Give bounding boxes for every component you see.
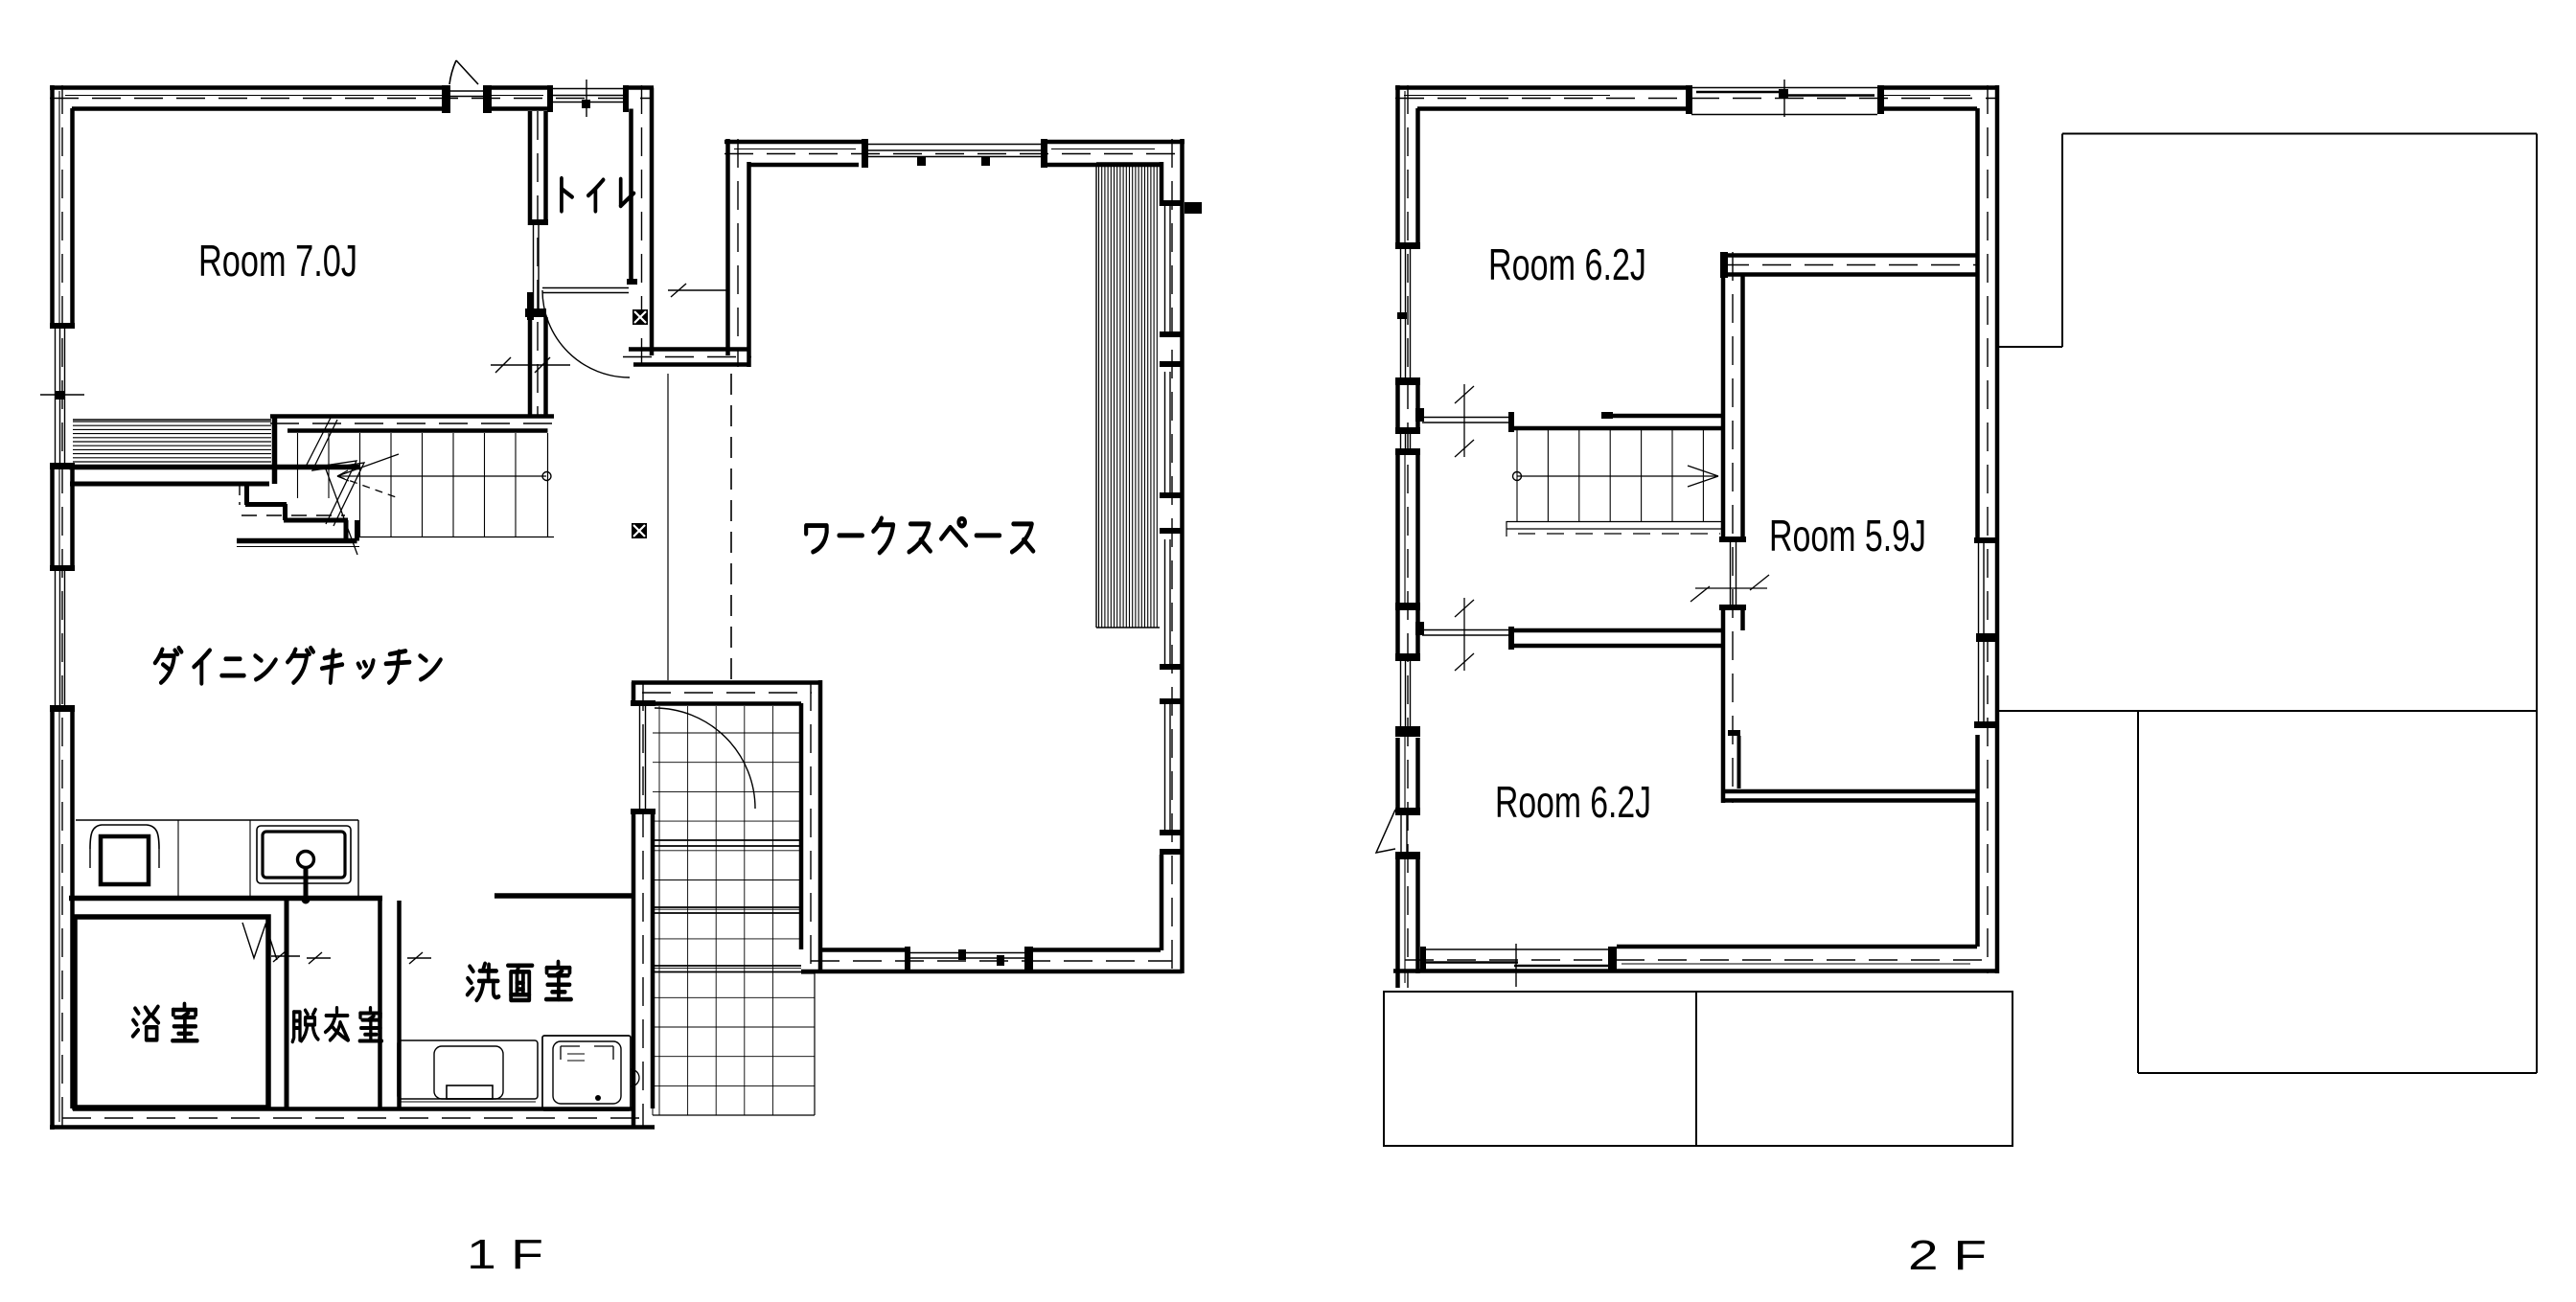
svg-text:Room 5.9J: Room 5.9J — [1769, 511, 1926, 560]
svg-text:2 F: 2 F — [1908, 1232, 1987, 1279]
svg-text:Room 6.2J: Room 6.2J — [1488, 240, 1646, 289]
svg-text:Room 6.2J: Room 6.2J — [1495, 777, 1651, 827]
svg-text:Room 7.0J: Room 7.0J — [198, 236, 357, 286]
svg-text:1 F: 1 F — [467, 1231, 543, 1278]
